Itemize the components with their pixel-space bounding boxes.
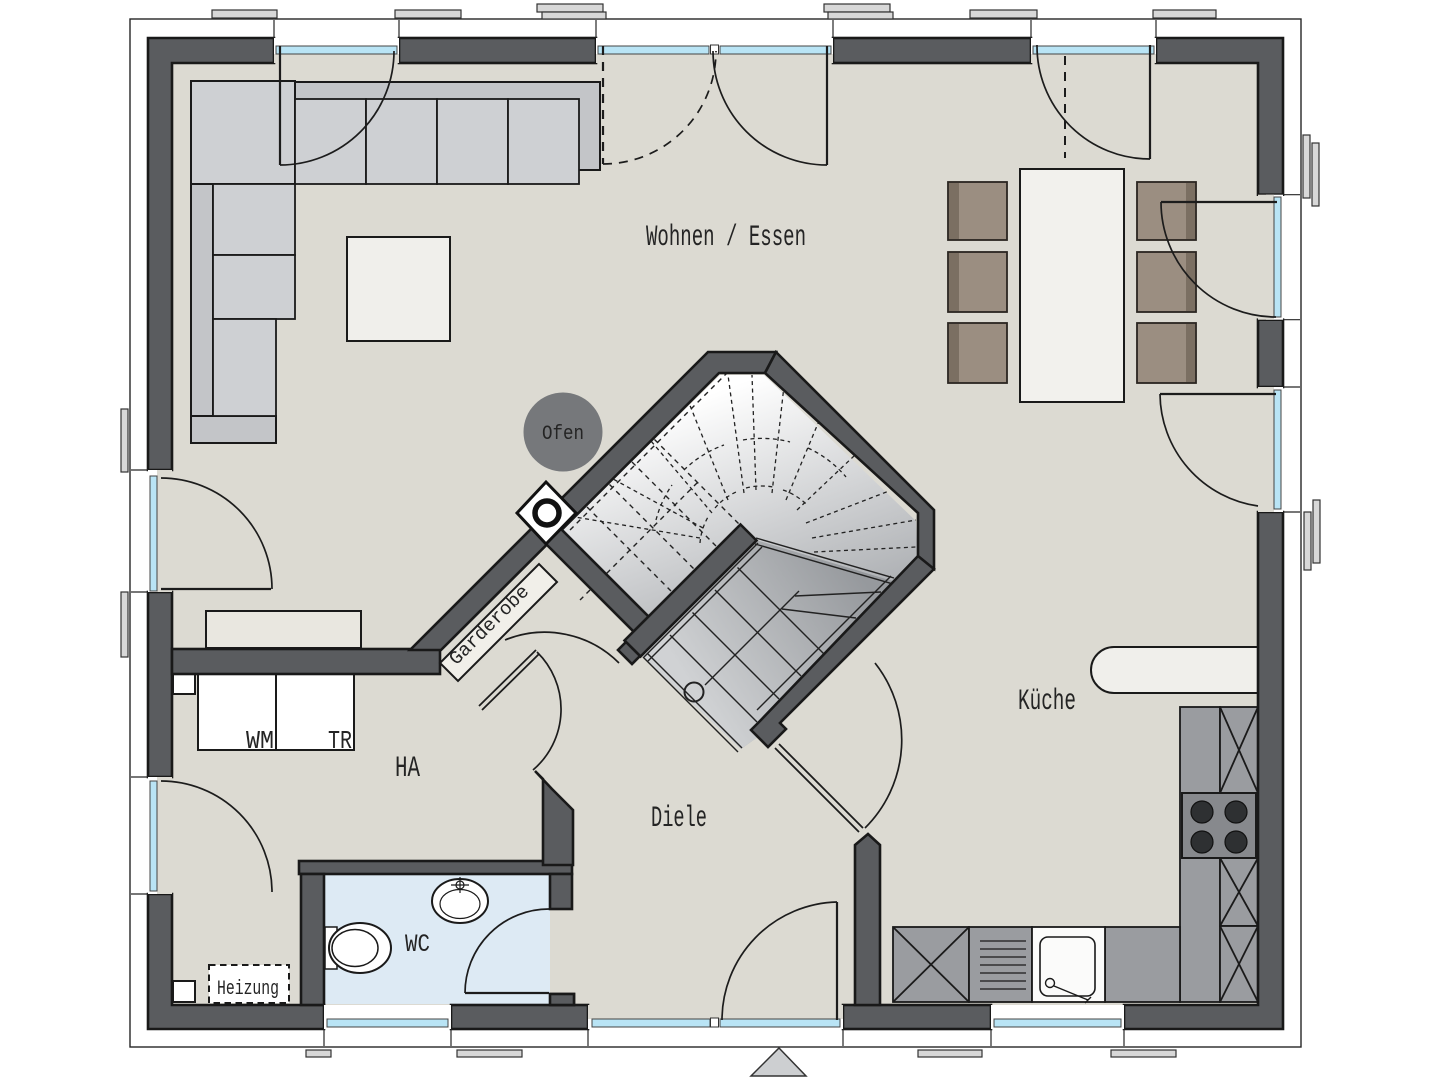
svg-text:Diele: Diele xyxy=(651,802,707,836)
svg-text:Ofen: Ofen xyxy=(542,423,584,446)
svg-text:Wohnen / Essen: Wohnen / Essen xyxy=(646,221,806,255)
svg-text:Küche: Küche xyxy=(1018,685,1076,719)
svg-text:TR: TR xyxy=(328,726,352,756)
svg-text:WM: WM xyxy=(246,726,274,756)
svg-text:WC: WC xyxy=(405,930,430,959)
svg-text:HA: HA xyxy=(395,752,420,786)
svg-text:Heizung: Heizung xyxy=(217,978,279,1001)
